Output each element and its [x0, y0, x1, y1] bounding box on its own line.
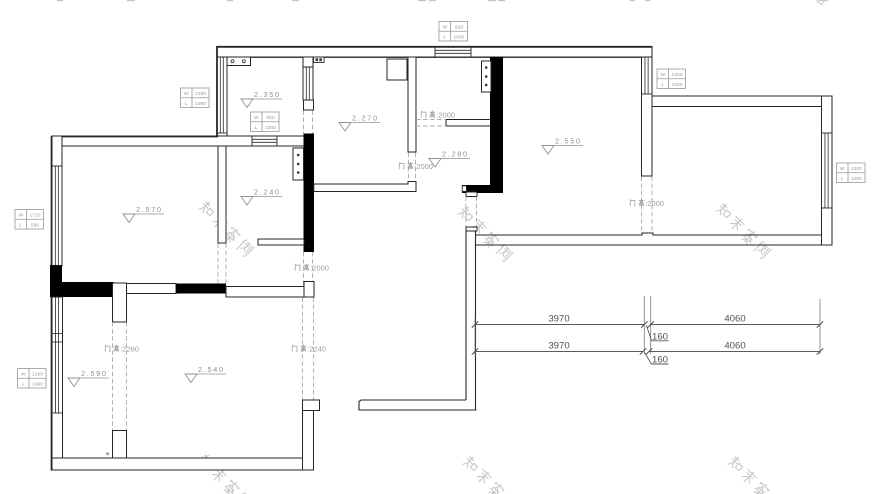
svg-text:1000: 1000: [265, 125, 276, 131]
svg-text:920: 920: [455, 25, 463, 31]
svg-text:1710: 1710: [30, 213, 41, 219]
svg-text:3970: 3970: [548, 314, 569, 325]
svg-text:2.350: 2.350: [254, 90, 281, 99]
svg-text:1090: 1090: [454, 34, 465, 40]
svg-text::2240: :2240: [307, 345, 326, 354]
svg-text:W: W: [840, 166, 845, 172]
svg-text:580: 580: [31, 222, 39, 228]
svg-text:L: L: [841, 176, 844, 182]
svg-text:2.240: 2.240: [254, 187, 281, 196]
svg-text:L: L: [19, 222, 22, 228]
svg-text:2.550: 2.550: [555, 136, 582, 145]
svg-text:160: 160: [652, 332, 668, 343]
svg-text:1090: 1090: [32, 381, 43, 387]
svg-text:2.570: 2.570: [136, 205, 163, 214]
svg-text:L: L: [22, 381, 25, 387]
svg-text:L: L: [255, 125, 258, 131]
svg-text:W: W: [184, 91, 189, 97]
svg-text:1290: 1290: [195, 91, 206, 97]
svg-text:W: W: [18, 213, 23, 219]
svg-text:1300: 1300: [672, 72, 683, 78]
svg-text:W: W: [442, 25, 447, 31]
svg-text:3970: 3970: [548, 341, 569, 352]
svg-text:W: W: [21, 372, 26, 378]
svg-text:2.270: 2.270: [352, 113, 379, 122]
svg-text:1000: 1000: [672, 82, 683, 88]
svg-text:L: L: [185, 101, 188, 107]
svg-text:1090: 1090: [195, 101, 206, 107]
svg-text:L: L: [443, 34, 446, 40]
svg-text:1000: 1000: [851, 176, 862, 182]
svg-text:920: 920: [266, 115, 274, 121]
svg-text:W: W: [254, 115, 259, 121]
svg-text:W: W: [660, 72, 665, 78]
svg-text::2000: :2000: [310, 264, 329, 273]
svg-text:160: 160: [652, 355, 668, 366]
svg-text:2.590: 2.590: [81, 369, 108, 378]
svg-text::2000: :2000: [645, 199, 664, 208]
svg-text::2000: :2000: [414, 162, 433, 171]
svg-text::2260: :2260: [120, 345, 139, 354]
svg-text:4060: 4060: [724, 314, 745, 325]
svg-text:1300: 1300: [851, 166, 862, 172]
svg-text:2.280: 2.280: [442, 149, 469, 158]
svg-text:1290: 1290: [32, 372, 43, 378]
svg-text:4060: 4060: [724, 341, 745, 352]
svg-text:2.540: 2.540: [198, 365, 225, 374]
svg-text:L: L: [661, 82, 664, 88]
svg-text::2000: :2000: [436, 111, 455, 120]
